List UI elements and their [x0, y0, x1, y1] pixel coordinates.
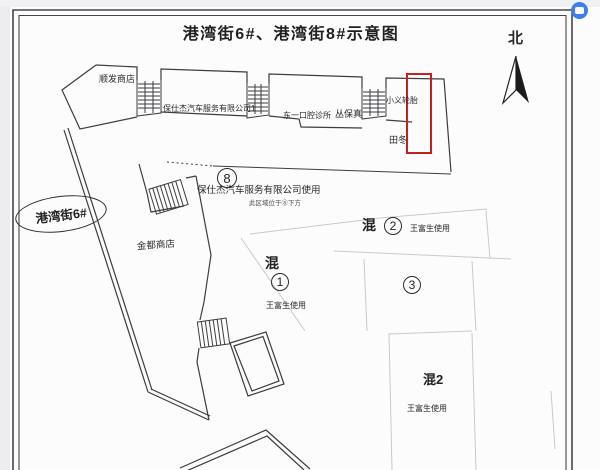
shop-label-shunfa: 顺发商店: [99, 74, 135, 84]
circled-number-3: 3: [403, 276, 421, 294]
page-title: 港湾街6#、港湾街8#示意图: [13, 26, 569, 44]
bottom-structure: [180, 430, 310, 470]
site-plan-linework: [0, 0, 600, 470]
north-arrow-icon: [503, 56, 529, 103]
note-under-8: 此区域位于⑧下方: [249, 200, 301, 207]
north-label: 北: [508, 30, 523, 47]
street-label: 港湾街6#: [34, 201, 87, 226]
left-building: [64, 128, 211, 420]
unit-hun2-prefix: 混: [362, 217, 376, 233]
highlight-box: [406, 73, 432, 154]
unit-hun1-user: 王富生使用: [266, 301, 306, 310]
unit-hun2b-label: 混2: [423, 373, 443, 388]
circled-number-2: 2: [384, 217, 402, 235]
unit-hun2-user: 王富生使用: [410, 224, 450, 233]
extension-glyph-icon: [575, 7, 584, 14]
boundary-lines: [167, 162, 451, 174]
scanned-site-plan-page: 港湾街6#、港湾街8#示意图 北 顺发商店 保仕杰汽车服务有限公司1 东一口腔诊…: [0, 0, 600, 470]
annex-room: [230, 332, 284, 396]
unit-hun1-prefix: 混: [265, 255, 279, 271]
circled-number-1: 1: [271, 273, 289, 291]
shop-label-baoshijie1: 保仕杰汽车服务有限公司1: [163, 104, 255, 113]
label-baoshijie-use: 保仕杰汽车服务有限公司使用: [197, 186, 321, 197]
stairwell-icon: [197, 318, 229, 348]
faint-building-outlines: [241, 209, 555, 470]
shop-label-xiaoyi-tire: 小义轮胎: [386, 96, 418, 105]
shop-label-congbaozhen: 丛保真: [335, 109, 362, 119]
shop-label-tiandong: 田冬: [389, 135, 407, 145]
shop-label-dental: 东一口腔诊所: [283, 111, 331, 120]
browser-extension-badge-icon[interactable]: [571, 2, 588, 19]
unit-hun2b-user: 王富生使用: [407, 404, 447, 413]
